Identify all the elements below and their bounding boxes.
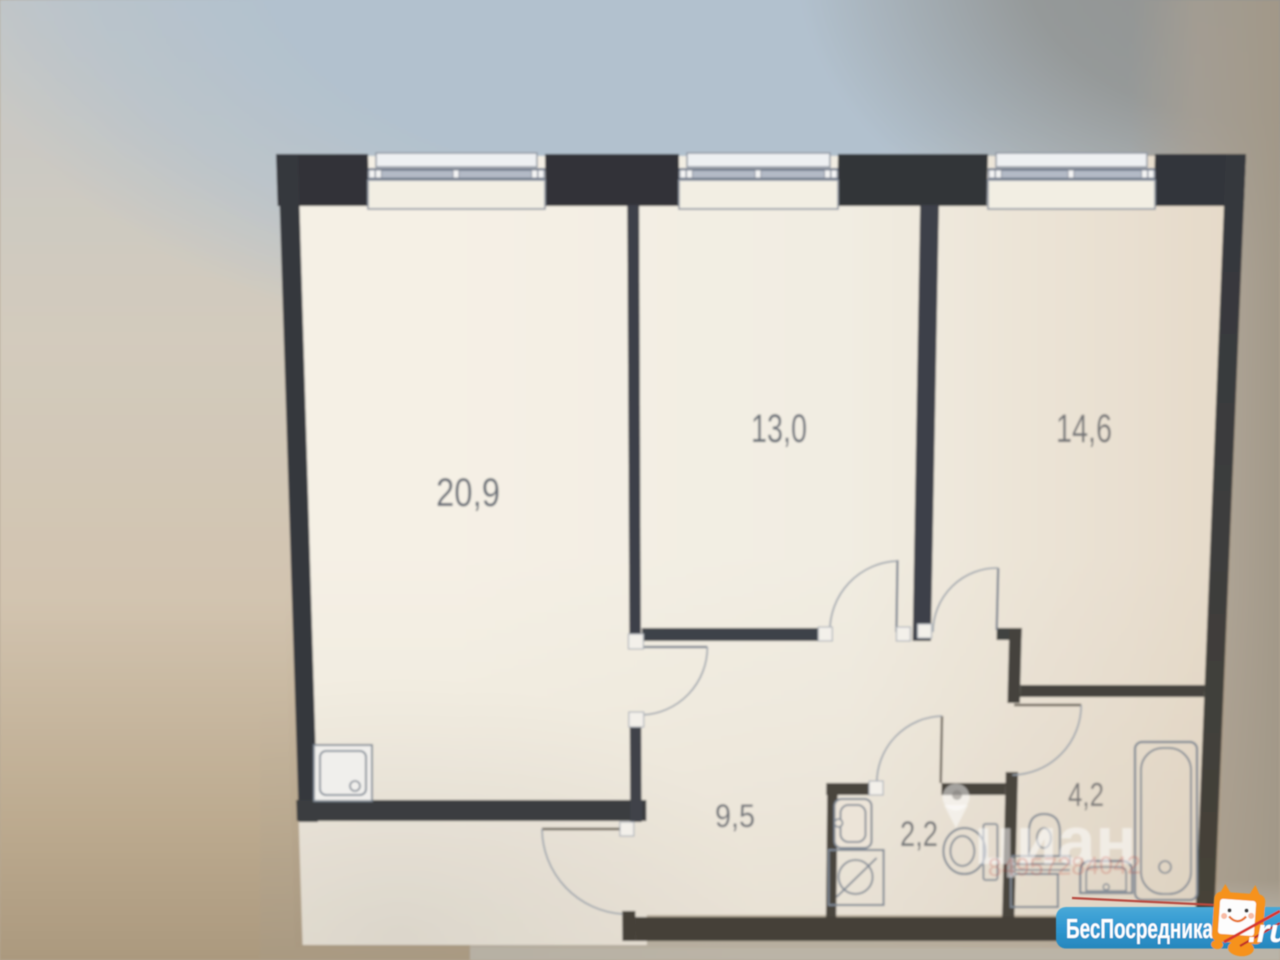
svg-text:84957284042: 84957284042	[988, 851, 1141, 882]
svg-text:.ru: .ru	[1248, 913, 1280, 949]
svg-text:БесПосредника: БесПосредника	[1066, 913, 1213, 944]
